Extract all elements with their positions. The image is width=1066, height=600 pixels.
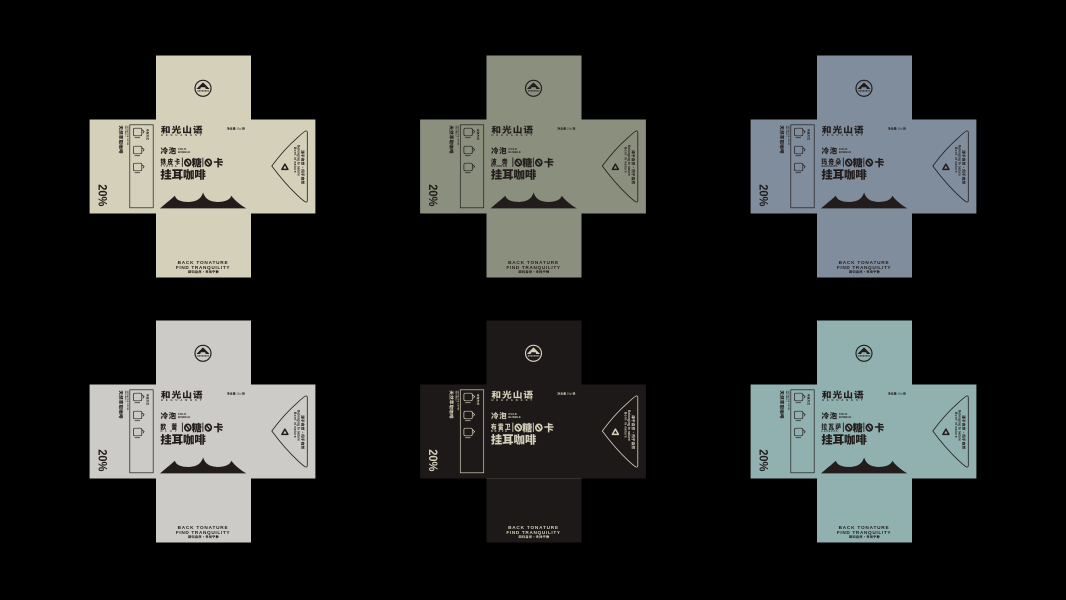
svg-text:10g/: 10g/	[236, 392, 242, 396]
svg-text:FIND TRANQUILITY: FIND TRANQUILITY	[837, 265, 892, 270]
svg-text:HEGUANGSY: HEGUANGSY	[161, 398, 202, 402]
svg-text:10g/: 10g/	[567, 127, 573, 131]
svg-text:FIND TRANQUILITY: FIND TRANQUILITY	[176, 530, 231, 535]
svg-text:20%: 20%	[756, 449, 770, 472]
svg-text:HEGUANGSY: HEGUANGSY	[822, 398, 863, 402]
svg-text:EXTRACTED COFFEE: EXTRACTED COFFEE	[457, 126, 460, 146]
svg-text:Born in nature: Born in nature	[624, 147, 628, 173]
svg-text:FIND TRANQUILITY: FIND TRANQUILITY	[176, 265, 231, 270]
svg-text:Born in nature: Born in nature	[624, 412, 628, 438]
svg-text:10g/: 10g/	[567, 392, 573, 396]
svg-text:Born in nature: Born in nature	[293, 412, 297, 438]
svg-text:EXTRACTED COFFEE: EXTRACTED COFFEE	[457, 391, 460, 411]
svg-text:MACCHIATO: MACCHIATO	[822, 165, 838, 168]
svg-text:10g/: 10g/	[236, 127, 242, 131]
svg-text:EXTRACTED COFFEE: EXTRACTED COFFEE	[787, 391, 790, 411]
svg-text:20%: 20%	[95, 184, 109, 207]
svg-text:BUBBLE: BUBBLE	[178, 150, 191, 154]
svg-text:TYPICA: TYPICA	[161, 165, 177, 168]
svg-text:HEGUANGSY: HEGUANGSY	[492, 398, 533, 402]
svg-text:20%: 20%	[95, 449, 109, 472]
svg-text:20%: 20%	[756, 184, 770, 207]
svg-text:FIND TRANQUILITY: FIND TRANQUILITY	[837, 530, 892, 535]
svg-text:BOURBON: BOURBON	[491, 165, 507, 168]
svg-text:BUBBLE: BUBBLE	[839, 150, 852, 154]
svg-text:Belonging to nature: Belonging to nature	[297, 410, 301, 441]
svg-text:FIND TRANQUILITY: FIND TRANQUILITY	[506, 530, 561, 535]
svg-text:Born in nature: Born in nature	[954, 412, 958, 438]
svg-text:Born in nature: Born in nature	[293, 147, 297, 173]
svg-text:Belonging to nature: Belonging to nature	[958, 145, 962, 176]
svg-text:Belonging to nature: Belonging to nature	[627, 145, 631, 176]
svg-text:HEGUANGSY: HEGUANGSY	[492, 133, 533, 137]
svg-text:HEGUANGSY: HEGUANGSY	[822, 133, 863, 137]
svg-text:EXTRACTED COFFEE: EXTRACTED COFFEE	[126, 391, 129, 411]
svg-text:BUBBLE: BUBBLE	[839, 415, 852, 419]
svg-text:10g/: 10g/	[897, 392, 903, 396]
svg-text:Belonging to nature: Belonging to nature	[627, 410, 631, 441]
svg-text:Born in nature: Born in nature	[954, 147, 958, 173]
svg-text:BUBBLE: BUBBLE	[178, 415, 191, 419]
svg-text:BUBBLE: BUBBLE	[508, 150, 521, 154]
svg-text:EXTRACTED COFFEE: EXTRACTED COFFEE	[126, 126, 129, 146]
svg-text:20%: 20%	[426, 184, 440, 207]
svg-text:HEGUANGSY: HEGUANGSY	[161, 133, 202, 137]
svg-text:10g/: 10g/	[897, 127, 903, 131]
svg-text:Belonging to nature: Belonging to nature	[958, 410, 962, 441]
svg-text:FIND TRANQUILITY: FIND TRANQUILITY	[506, 265, 561, 270]
svg-text:Belonging to nature: Belonging to nature	[297, 145, 301, 176]
svg-text:LAVAZZA: LAVAZZA	[822, 430, 838, 433]
svg-text:EXTRACTED COFFEE: EXTRACTED COFFEE	[787, 126, 790, 146]
svg-text:20%: 20%	[426, 449, 440, 472]
svg-text:BUBBLE: BUBBLE	[508, 415, 521, 419]
